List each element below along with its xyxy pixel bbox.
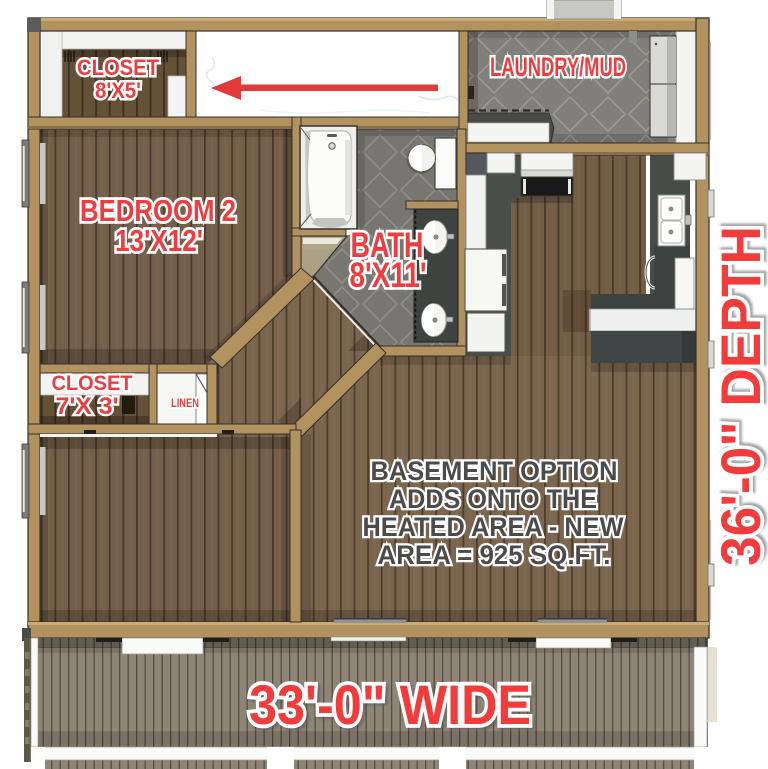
svg-text:LAUNDRY/MUD: LAUNDRY/MUD [490, 52, 626, 82]
svg-text:ADDS ONTO THE: ADDS ONTO THE [389, 484, 597, 514]
svg-text:LINEN: LINEN [171, 396, 199, 410]
svg-text:7'X 3': 7'X 3' [56, 393, 119, 420]
svg-text:HEATED AREA - NEW: HEATED AREA - NEW [363, 512, 624, 542]
svg-text:8'X5': 8'X5' [95, 78, 141, 103]
svg-text:AREA = 925 SQ.FT.: AREA = 925 SQ.FT. [378, 540, 611, 570]
svg-text:CLOSET: CLOSET [52, 372, 133, 395]
svg-text:CLOSET: CLOSET [77, 55, 160, 80]
svg-text:33'-0" WIDE: 33'-0" WIDE [249, 673, 531, 736]
svg-text:13'X12': 13'X12' [115, 223, 203, 258]
svg-text:8'X11': 8'X11' [350, 256, 427, 295]
svg-text:36'-0" DEPTH: 36'-0" DEPTH [709, 226, 768, 566]
svg-text:BASEMENT OPTION: BASEMENT OPTION [371, 456, 618, 486]
